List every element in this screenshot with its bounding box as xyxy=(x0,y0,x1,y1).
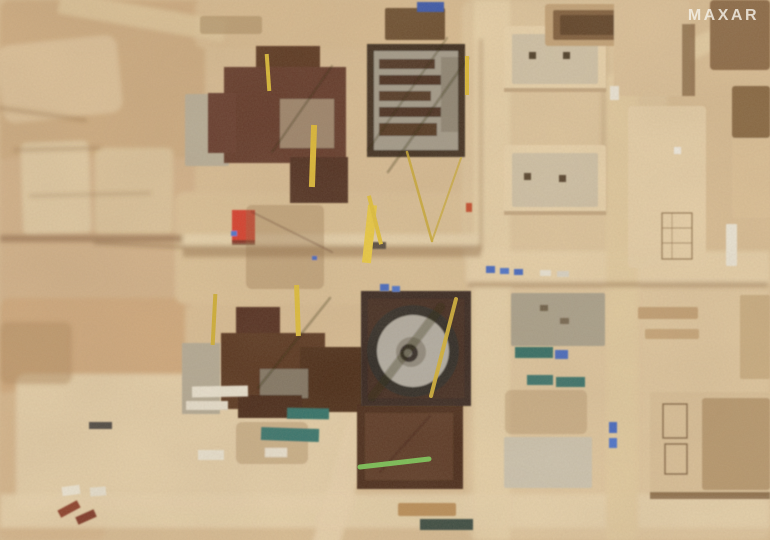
satellite-scene xyxy=(0,0,770,540)
maxar-watermark: MAXAR xyxy=(688,7,759,25)
sand-highlight-overlay xyxy=(0,0,770,540)
satellite-image: MAXAR xyxy=(0,0,770,540)
